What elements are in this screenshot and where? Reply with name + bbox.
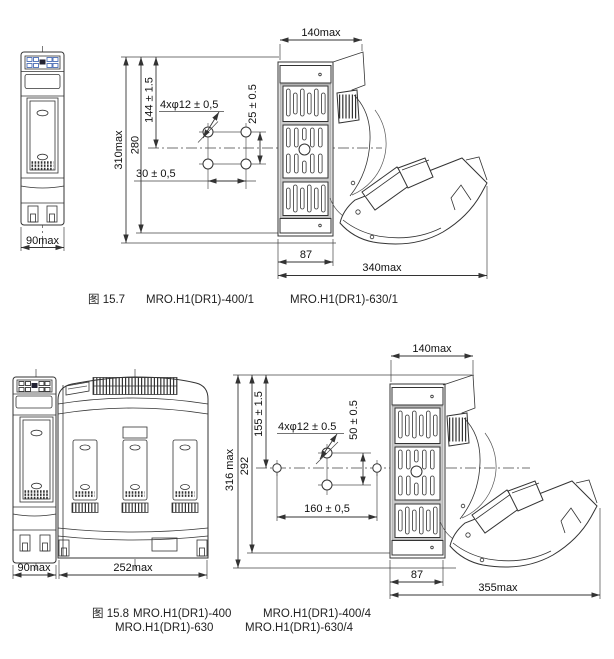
figure-bottom-model-4: MRO.H1(DR1)-630/4 <box>245 622 354 634</box>
dim-label-base-depth-bottom: 87 <box>411 569 423 581</box>
dim-label-open-depth-top: 340max <box>362 262 402 274</box>
dim-label-overall-height-top: 310max <box>113 130 125 170</box>
caption-figure-bottom: 图 15.8 MRO.H1(DR1)-400 MRO.H1(DR1)-400/4… <box>92 607 372 634</box>
dim-label-hole-pitch-v-top: 25 ± 0.5 <box>247 84 259 124</box>
face-view-bottom <box>390 384 445 558</box>
technical-drawing-page: 90max 310max 280 144 ± 1.5 25 ± 0.5 30 ±… <box>0 0 614 659</box>
dimension-drawings-svg: 90max 310max 280 144 ± 1.5 25 ± 0.5 30 ±… <box>0 0 614 659</box>
figure-bottom-model-3: MRO.H1(DR1)-630 <box>115 622 213 634</box>
dim-label-side-width-bottom: 90max <box>17 562 51 574</box>
side-view-narrow-bottom: 90max <box>13 369 56 579</box>
dim-label-overall-height-bottom: 316 max <box>224 448 236 491</box>
dim-label-body-height-top: 280 <box>130 136 142 154</box>
figure-bottom-model-1: MRO.H1(DR1)-400 <box>133 608 231 620</box>
figure-top-model-2: MRO.H1(DR1)-630/1 <box>290 294 398 306</box>
dim-label-hole-offset-top: 144 ± 1.5 <box>144 77 156 123</box>
dim-label-hole-pitch-v-bottom: 50 ± 0.5 <box>348 400 360 440</box>
front-view-1pole: 90max <box>21 46 64 251</box>
dim-label-front-width-bottom: 252max <box>113 562 153 574</box>
figure-top-number: 图 15.7 <box>88 293 125 306</box>
figure-bottom-number: 图 15.8 <box>92 607 129 620</box>
dim-label-body-height-bottom: 292 <box>239 457 251 475</box>
dim-label-hole-note-bottom: 4xφ12 ± 0.5 <box>278 421 336 433</box>
figure-top-drawing: 90max 310max 280 144 ± 1.5 25 ± 0.5 30 ±… <box>21 27 487 306</box>
dim-label-top-width-top: 140max <box>301 27 341 39</box>
figure-bottom-model-2: MRO.H1(DR1)-400/4 <box>263 608 372 620</box>
dim-label-open-depth-bottom: 355max <box>478 582 518 594</box>
dim-label-top-width-bottom: 140max <box>412 343 452 355</box>
side-3d-bottom <box>440 375 597 567</box>
dim-label-hole-pitch-h-top: 30 ± 0,5 <box>136 168 176 180</box>
dim-label-front-width-top: 90max <box>26 235 60 247</box>
figure-bottom-drawing: 90max <box>13 343 600 634</box>
figure-top-model-1: MRO.H1(DR1)-400/1 <box>146 294 254 306</box>
caption-figure-top: 图 15.7 MRO.H1(DR1)-400/1 MRO.H1(DR1)-630… <box>88 293 398 306</box>
dim-label-hole-note-top: 4xφ12 ± 0,5 <box>160 99 218 111</box>
dim-label-base-depth-top: 87 <box>300 249 312 261</box>
mounting-holes-top <box>199 123 266 189</box>
dim-label-hole-pitch-h-bottom: 160 ± 0,5 <box>304 503 350 515</box>
mounting-holes-bottom <box>273 444 381 495</box>
front-view-3pole: 252max <box>58 369 208 579</box>
face-view-top <box>278 62 333 236</box>
dim-label-hole-offset-bottom: 155 ± 1.5 <box>253 391 265 437</box>
